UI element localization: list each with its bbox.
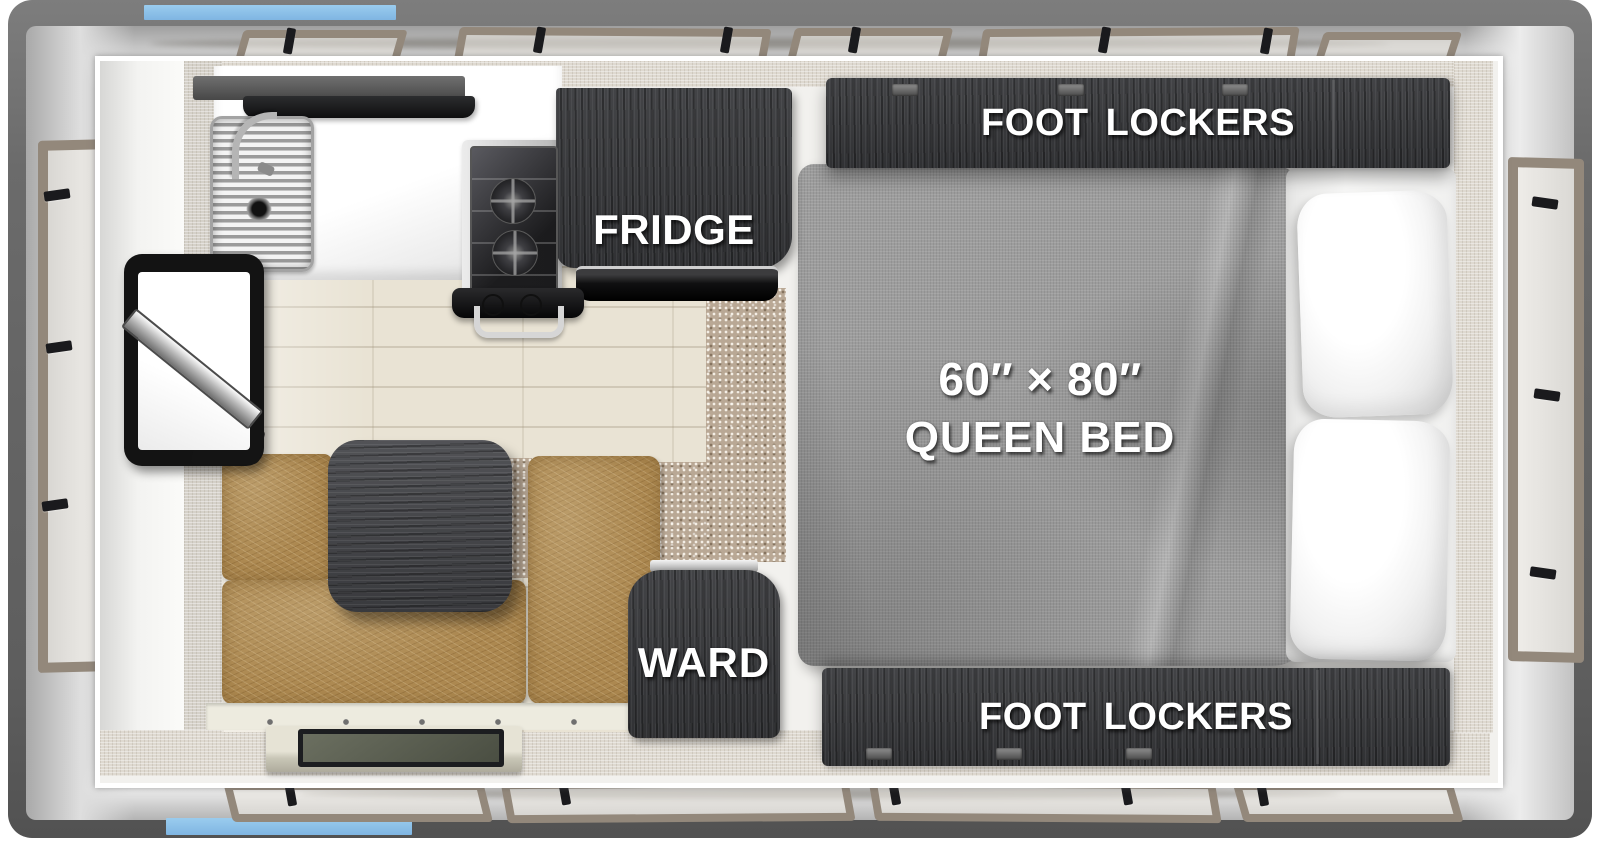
camper-floorplan: FRIDGE WARD 60″ × 80″ QUEEN BED FOOT LOC… — [0, 0, 1600, 843]
sink-drain — [246, 196, 272, 222]
burner-grate-icon — [491, 179, 535, 223]
entry-step-mat — [298, 729, 504, 767]
carpet-step-up — [706, 288, 786, 562]
entry-step — [266, 726, 522, 772]
window-outline-bottom-1 — [223, 782, 493, 822]
wardrobe-label: WARD — [638, 639, 770, 687]
hinge-hardware-icon — [1222, 84, 1248, 96]
fridge-cabinet: FRIDGE — [556, 88, 792, 268]
foot-lockers-bottom-cabinet: FOOT LOCKERS — [822, 668, 1450, 766]
foot-lockers-bottom-label: FOOT LOCKERS — [979, 696, 1293, 739]
burner-front — [490, 178, 536, 224]
dinette-table — [328, 440, 512, 612]
hinge-hardware-icon — [892, 84, 918, 96]
cabinet-seam — [1332, 80, 1335, 166]
wardrobe-cabinet: WARD — [628, 570, 780, 738]
awning-marker-top — [144, 5, 396, 20]
hinge-hardware-icon — [866, 748, 892, 760]
fridge-drawer-front — [576, 266, 778, 301]
cooktop-knob-right — [520, 294, 542, 316]
dinette-backrest — [222, 454, 332, 580]
range-hood — [243, 96, 475, 118]
cabinet-seam — [1316, 670, 1319, 764]
bed-name-label: QUEEN BED — [905, 408, 1176, 468]
cooktop-knob-left — [482, 294, 504, 316]
burner-grate-icon — [493, 231, 537, 275]
bed-label: 60″ × 80″ QUEEN BED — [840, 350, 1240, 468]
burner-rear — [492, 230, 538, 276]
interior-wall-right-texture — [1454, 61, 1493, 733]
carpet-step-up-lower — [658, 462, 710, 560]
fridge-label: FRIDGE — [593, 206, 755, 254]
window-outline-right — [1508, 157, 1584, 663]
hinge-hardware-icon — [996, 748, 1022, 760]
pillow-bottom — [1290, 418, 1451, 661]
foot-lockers-top-cabinet: FOOT LOCKERS — [826, 78, 1450, 168]
foot-lockers-top-label: FOOT LOCKERS — [981, 102, 1295, 145]
hinge-hardware-icon — [1058, 84, 1084, 96]
hinge-hardware-icon — [1126, 748, 1152, 760]
pillow-top — [1296, 189, 1454, 418]
bed-size-label: 60″ × 80″ — [938, 350, 1141, 408]
